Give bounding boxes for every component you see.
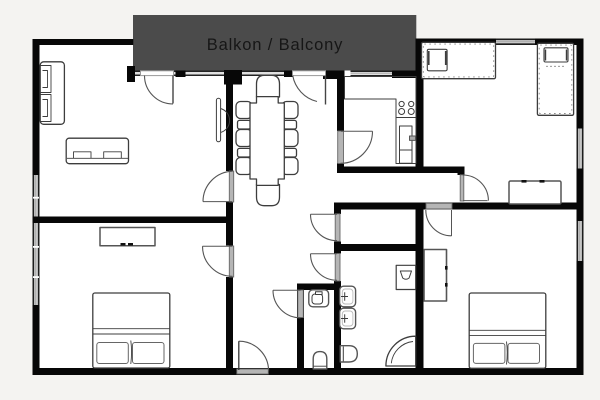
svg-text:Balkon / Balcony: Balkon / Balcony [207,36,344,54]
